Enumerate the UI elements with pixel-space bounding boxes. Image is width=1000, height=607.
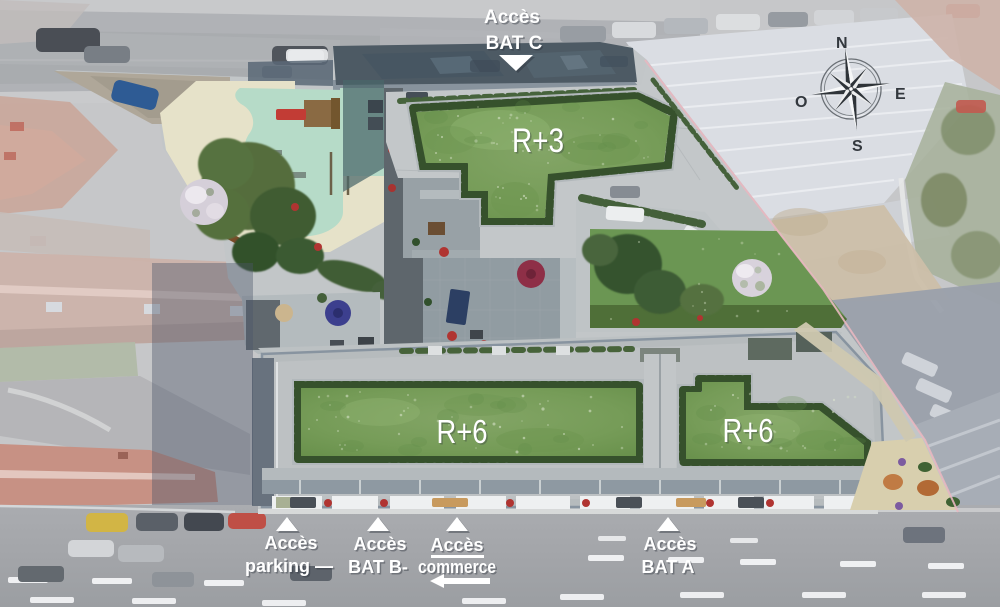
svg-text:BAT B-: BAT B-	[348, 557, 408, 577]
svg-text:BAT C: BAT C	[486, 33, 543, 54]
svg-text:Accès: Accès	[353, 534, 406, 554]
svg-text:Accès: Accès	[264, 533, 317, 553]
svg-text:BAT A: BAT A	[642, 557, 695, 577]
svg-text:S: S	[852, 138, 863, 155]
svg-text:Accès: Accès	[484, 7, 540, 28]
svg-text:E: E	[895, 86, 906, 103]
svg-text:R+6: R+6	[723, 412, 774, 449]
svg-text:Accès: Accès	[643, 534, 696, 554]
svg-text:commerce: commerce	[418, 557, 496, 577]
svg-text:R+6: R+6	[437, 413, 488, 450]
svg-text:R+3: R+3	[512, 122, 564, 160]
svg-text:Accès: Accès	[430, 535, 483, 555]
svg-text:N: N	[836, 35, 848, 52]
svg-text:O: O	[795, 94, 807, 111]
svg-text:parking —: parking —	[245, 556, 333, 576]
